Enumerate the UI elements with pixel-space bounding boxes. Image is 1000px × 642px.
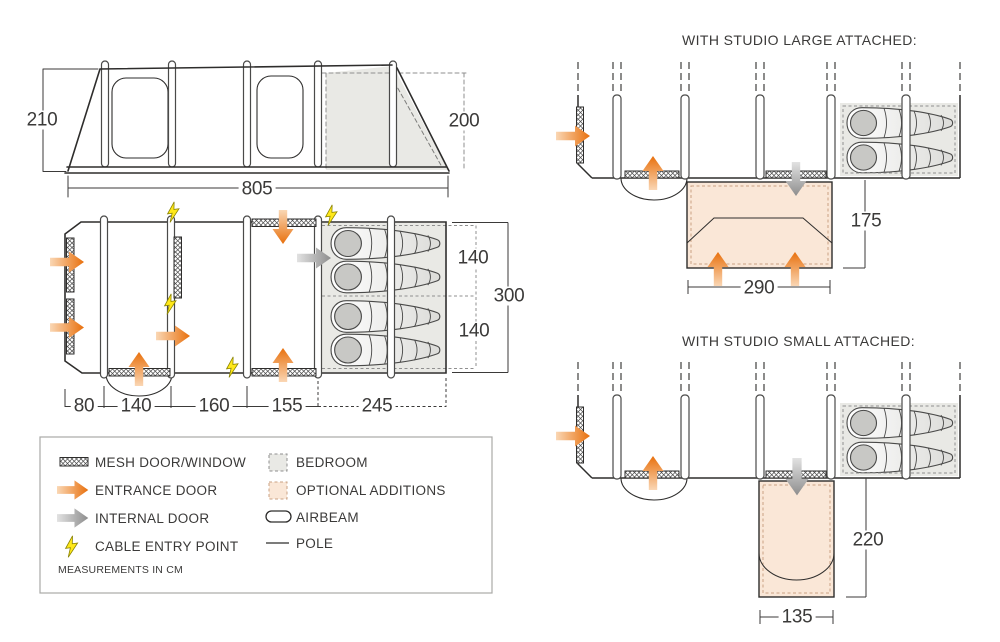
studio-small-title: WITH STUDIO SMALL ATTACHED: (682, 334, 915, 348)
studio-large-width-label: 290 (741, 279, 778, 298)
optional-swatch-icon (269, 482, 287, 499)
legend-note: MEASUREMENTS IN CM (58, 565, 183, 576)
elevation-window (257, 76, 303, 158)
entrance-door-arrow (556, 126, 590, 147)
tent-cut-lines (578, 62, 960, 95)
floor-plan (50, 201, 508, 408)
elevation-shaded-area (326, 66, 448, 170)
legend-mesh-label: MESH DOOR/WINDOW (95, 456, 246, 471)
tent-cut-lines (578, 362, 960, 395)
mesh-swatch-icon (60, 458, 88, 467)
legend-cable-label: CABLE ENTRY POINT (95, 540, 238, 555)
legend-airbeam-label: AIRBEAM (296, 511, 359, 526)
floorplan-right-total-label: 300 (491, 287, 528, 306)
studio-large-diagram (556, 62, 960, 294)
floorplan-bottom-label: 140 (118, 397, 155, 416)
studio-small-diagram (556, 362, 960, 624)
legend-pole-label: POLE (296, 537, 333, 552)
studio-large-depth-label: 175 (848, 212, 885, 231)
legend-optional-label: OPTIONAL ADDITIONS (296, 484, 446, 499)
studio-small-depth-label: 220 (850, 531, 887, 550)
bedroom-swatch-icon (269, 454, 287, 471)
legend-entrance-label: ENTRANCE DOOR (95, 484, 217, 499)
legend-bedroom-label: BEDROOM (296, 456, 368, 471)
studio-large-area (687, 182, 832, 268)
elevation-height-left-label: 210 (24, 111, 61, 130)
elevation-length-label: 805 (239, 180, 276, 199)
floorplan-bottom-label: 160 (196, 397, 233, 416)
floorplan-bottom-label: 245 (359, 397, 396, 416)
airbeam-icon (266, 511, 291, 522)
studio-large-title: WITH STUDIO LARGE ATTACHED: (682, 33, 917, 47)
tent-specification-diagram: 210 805 200 140 300 140 80 140 160 155 2… (0, 0, 1000, 642)
floorplan-right-lower-label: 140 (456, 322, 493, 341)
studio-small-width-label: 135 (779, 608, 816, 627)
floorplan-right-upper-label: 140 (455, 249, 492, 268)
elevation-window (112, 78, 168, 158)
elevation-view (43, 61, 466, 197)
floorplan-bottom-label: 155 (269, 397, 306, 416)
floorplan-bottom-label: 80 (71, 397, 98, 416)
entrance-door-arrow (556, 426, 590, 447)
legend-internal-label: INTERNAL DOOR (95, 512, 209, 527)
elevation-height-right-label: 200 (446, 112, 483, 131)
